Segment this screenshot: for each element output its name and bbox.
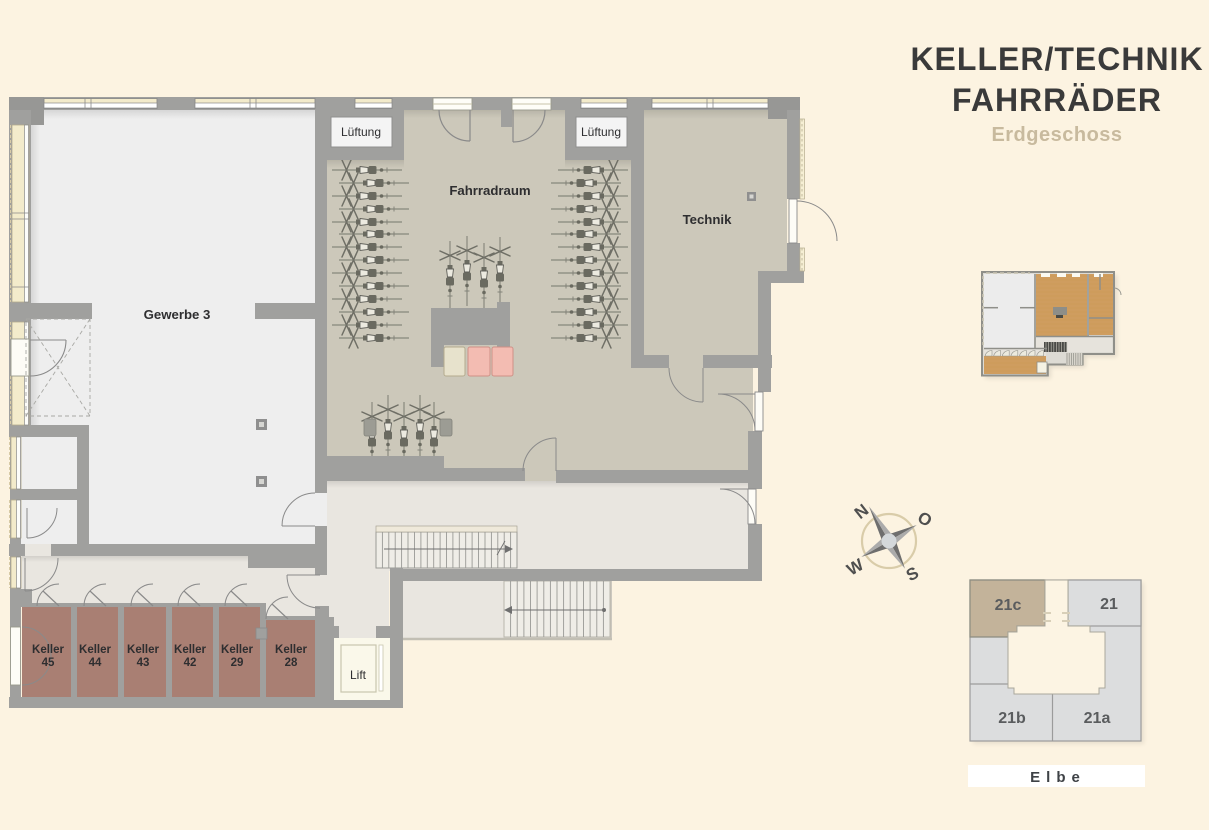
svg-text:Technik: Technik [683, 212, 733, 227]
svg-text:Elbe: Elbe [1030, 769, 1086, 786]
svg-text:21: 21 [1100, 596, 1118, 613]
svg-text:21c: 21c [995, 597, 1022, 614]
svg-text:FAHRRÄDER: FAHRRÄDER [952, 82, 1162, 118]
svg-text:44: 44 [89, 657, 102, 669]
svg-text:29: 29 [231, 657, 244, 669]
svg-text:Keller: Keller [221, 644, 253, 656]
svg-text:21a: 21a [1084, 710, 1111, 727]
svg-text:Keller: Keller [79, 644, 111, 656]
svg-text:Keller: Keller [32, 644, 64, 656]
svg-text:Keller: Keller [174, 644, 206, 656]
svg-text:Keller: Keller [275, 644, 307, 656]
svg-text:42: 42 [184, 657, 197, 669]
svg-text:KELLER/TECHNIK: KELLER/TECHNIK [910, 41, 1203, 77]
svg-text:43: 43 [137, 657, 150, 669]
svg-text:21b: 21b [998, 710, 1026, 727]
svg-text:Lift: Lift [350, 668, 367, 682]
svg-text:Lüftung: Lüftung [341, 125, 381, 139]
svg-text:Fahrradraum: Fahrradraum [449, 183, 530, 198]
svg-text:Gewerbe 3: Gewerbe 3 [144, 307, 211, 322]
svg-text:28: 28 [285, 657, 298, 669]
svg-text:Erdgeschoss: Erdgeschoss [991, 124, 1122, 146]
svg-text:Lüftung: Lüftung [581, 125, 621, 139]
svg-text:45: 45 [42, 657, 55, 669]
svg-text:Keller: Keller [127, 644, 159, 656]
